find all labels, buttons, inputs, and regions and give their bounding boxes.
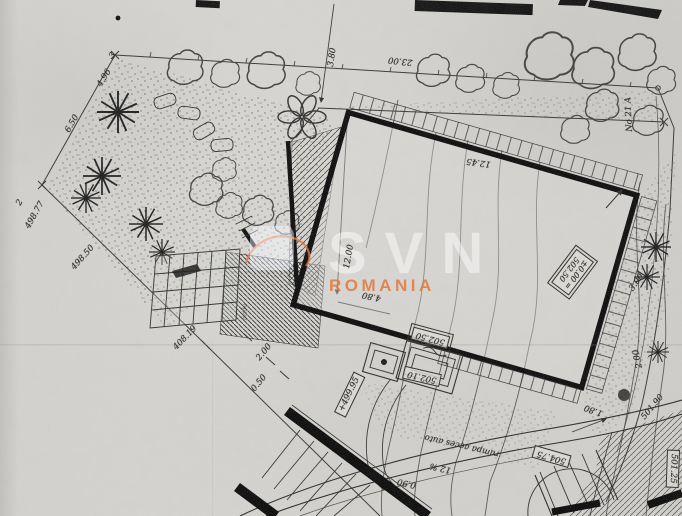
elev-box-50125: 501.25 [666,450,680,488]
watermark-logo [250,226,294,270]
dim-interior: 12.45 [466,156,491,168]
scanned-site-plan: SVN ROMANIA 3.80 23.00 No 21 A 3 4.96 6.… [0,0,682,516]
dim-frontage: 23.00 [388,55,413,66]
street-number: No 21 A [624,97,634,132]
niche-label: firida [242,304,249,320]
